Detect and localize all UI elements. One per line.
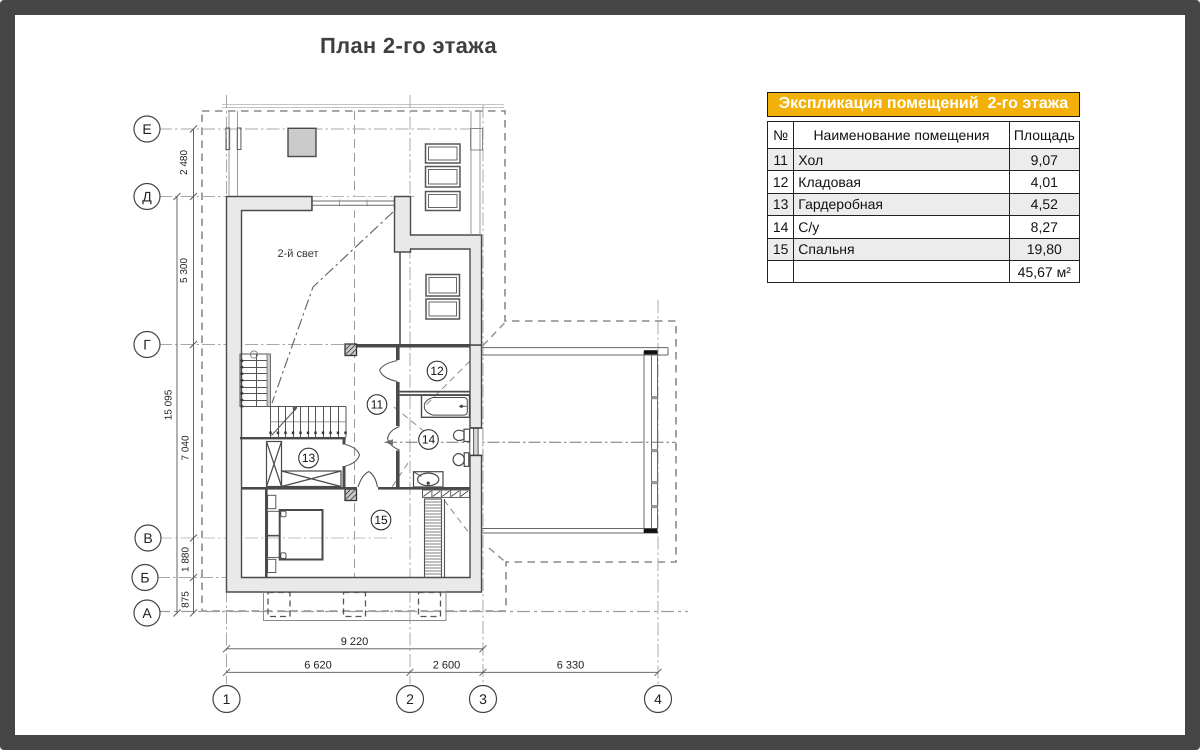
svg-text:14: 14 — [422, 433, 436, 447]
svg-text:А: А — [142, 605, 152, 621]
svg-text:2 600: 2 600 — [433, 660, 461, 672]
svg-text:12: 12 — [430, 364, 444, 378]
svg-text:5 300: 5 300 — [179, 258, 190, 283]
svg-text:2-й свет: 2-й свет — [278, 248, 319, 260]
svg-text:1 880: 1 880 — [181, 547, 192, 572]
svg-text:11: 11 — [371, 398, 384, 412]
svg-text:2 480: 2 480 — [179, 150, 190, 175]
svg-text:Д: Д — [142, 188, 152, 204]
svg-text:13: 13 — [302, 451, 316, 465]
svg-text:875: 875 — [181, 591, 192, 608]
svg-text:3: 3 — [479, 691, 487, 707]
svg-text:Г: Г — [143, 336, 151, 352]
svg-text:6 620: 6 620 — [304, 660, 332, 672]
svg-text:7 040: 7 040 — [181, 435, 192, 460]
svg-text:В: В — [143, 530, 152, 546]
svg-text:2: 2 — [406, 691, 414, 707]
svg-text:Б: Б — [140, 569, 149, 585]
svg-text:15: 15 — [374, 513, 388, 527]
svg-text:9 220: 9 220 — [341, 636, 369, 648]
svg-text:6 330: 6 330 — [557, 660, 585, 672]
svg-text:1: 1 — [223, 691, 231, 707]
svg-text:Е: Е — [142, 121, 151, 137]
svg-text:15 095: 15 095 — [164, 389, 175, 420]
svg-text:4: 4 — [654, 691, 662, 707]
